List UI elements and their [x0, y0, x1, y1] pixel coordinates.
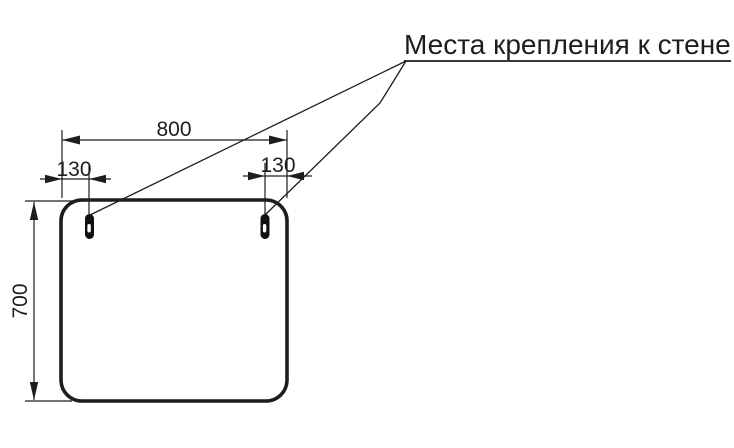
dimension-overall-height: 700 — [9, 201, 86, 401]
dimension-overall-width: 800 — [62, 118, 287, 198]
dim-label-130-right: 130 — [260, 154, 295, 177]
dimension-left-hole-offset: 130 — [40, 158, 111, 214]
mounting-slot-left-hole — [87, 224, 90, 233]
dim-label-130-left: 130 — [56, 158, 91, 181]
drawing-canvas: Места крепления к стене 800 — [0, 0, 734, 448]
arrowhead-700-bottom — [30, 382, 38, 400]
arrowhead-130-left-inner — [89, 175, 106, 183]
callout-label: Места крепления к стене — [404, 29, 731, 60]
arrowhead-800-right — [269, 136, 287, 145]
panel-outline — [61, 200, 287, 401]
mounting-slot-left — [85, 214, 94, 239]
mounting-slot-right-hole — [263, 224, 266, 233]
leader-line-left-slot — [90, 61, 406, 215]
arrowhead-700-top — [30, 202, 38, 220]
dim-label-800: 800 — [156, 118, 191, 141]
dim-label-700: 700 — [9, 283, 32, 318]
technical-drawing: Места крепления к стене 800 — [0, 0, 734, 448]
arrowhead-800-left — [62, 136, 80, 145]
leader-line-right-slot — [265, 61, 406, 215]
mounting-slot-right — [261, 214, 270, 239]
